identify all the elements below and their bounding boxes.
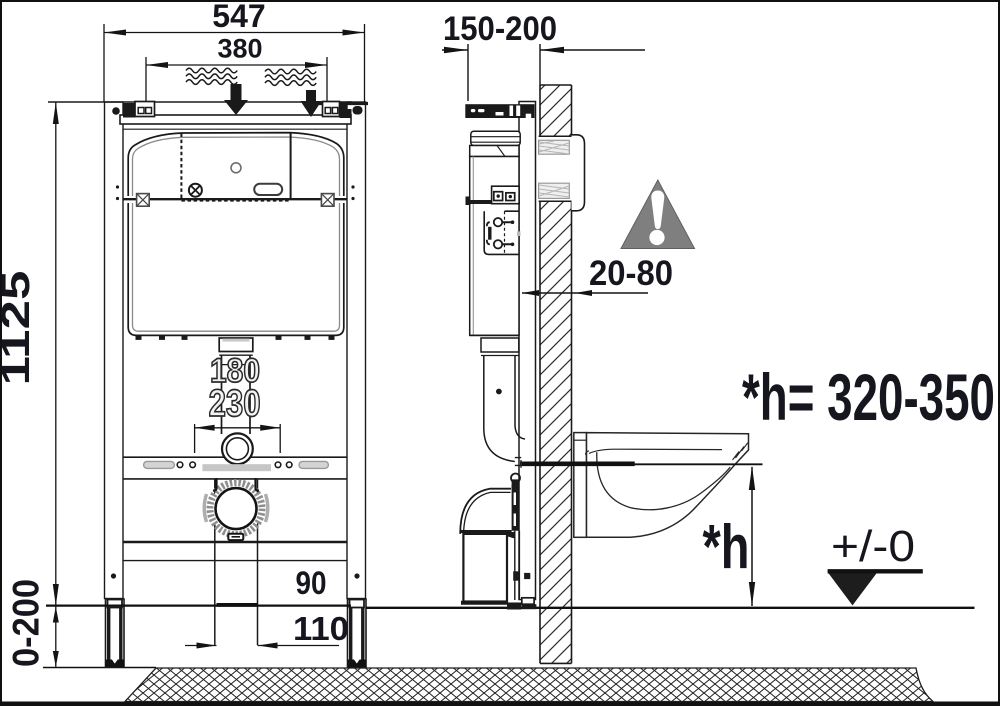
svg-text:*h= 320-350: *h= 320-350 <box>742 360 995 434</box>
svg-text:0-200: 0-200 <box>6 579 47 667</box>
svg-text:230: 230 <box>209 383 261 425</box>
svg-text:150-200: 150-200 <box>443 10 557 48</box>
svg-text:380: 380 <box>217 34 262 64</box>
svg-text:*h: *h <box>703 513 750 582</box>
svg-text:547: 547 <box>212 0 265 34</box>
svg-text:+/-0: +/-0 <box>831 522 915 571</box>
svg-text:110: 110 <box>293 610 349 647</box>
svg-text:1125: 1125 <box>0 271 38 386</box>
svg-text:20-80: 20-80 <box>589 254 673 293</box>
svg-text:90: 90 <box>296 565 327 601</box>
